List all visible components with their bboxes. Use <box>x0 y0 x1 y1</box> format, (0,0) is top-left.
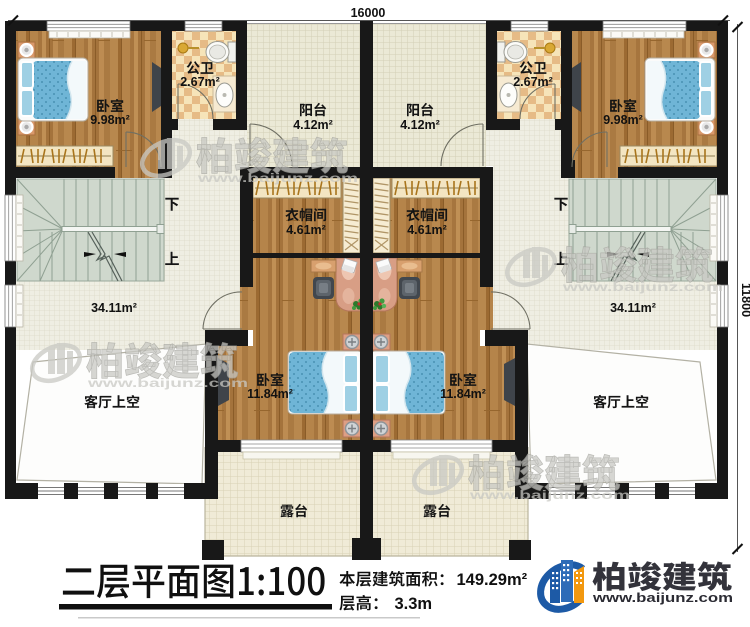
svg-text:11.84m²: 11.84m² <box>440 387 486 401</box>
svg-text:34.11m²: 34.11m² <box>91 301 137 315</box>
svg-text:2.67m²: 2.67m² <box>513 75 553 89</box>
svg-text:4.12m²: 4.12m² <box>400 118 440 132</box>
svg-text:4.61m²: 4.61m² <box>286 223 326 237</box>
svg-text:www.baijunz.com: www.baijunz.com <box>86 376 248 390</box>
svg-text:149.29m²: 149.29m² <box>457 571 528 589</box>
svg-text:4.12m²: 4.12m² <box>293 118 333 132</box>
svg-text:11800: 11800 <box>739 283 750 317</box>
svg-text:www.baijunz.com: www.baijunz.com <box>592 590 733 605</box>
svg-text:3.3m: 3.3m <box>395 595 433 613</box>
svg-text:2.67m²: 2.67m² <box>180 75 220 89</box>
svg-text:www.baijunz.com: www.baijunz.com <box>561 280 723 294</box>
svg-text:34.11m²: 34.11m² <box>610 301 656 315</box>
svg-text:11.84m²: 11.84m² <box>247 387 293 401</box>
svg-text:www.baijunz.com: www.baijunz.com <box>468 488 630 502</box>
svg-text:16000: 16000 <box>351 6 386 20</box>
svg-text:9.98m²: 9.98m² <box>90 113 130 127</box>
svg-text:9.98m²: 9.98m² <box>603 113 643 127</box>
svg-text:4.61m²: 4.61m² <box>407 223 447 237</box>
svg-text:www.baijunz.com: www.baijunz.com <box>196 171 358 185</box>
